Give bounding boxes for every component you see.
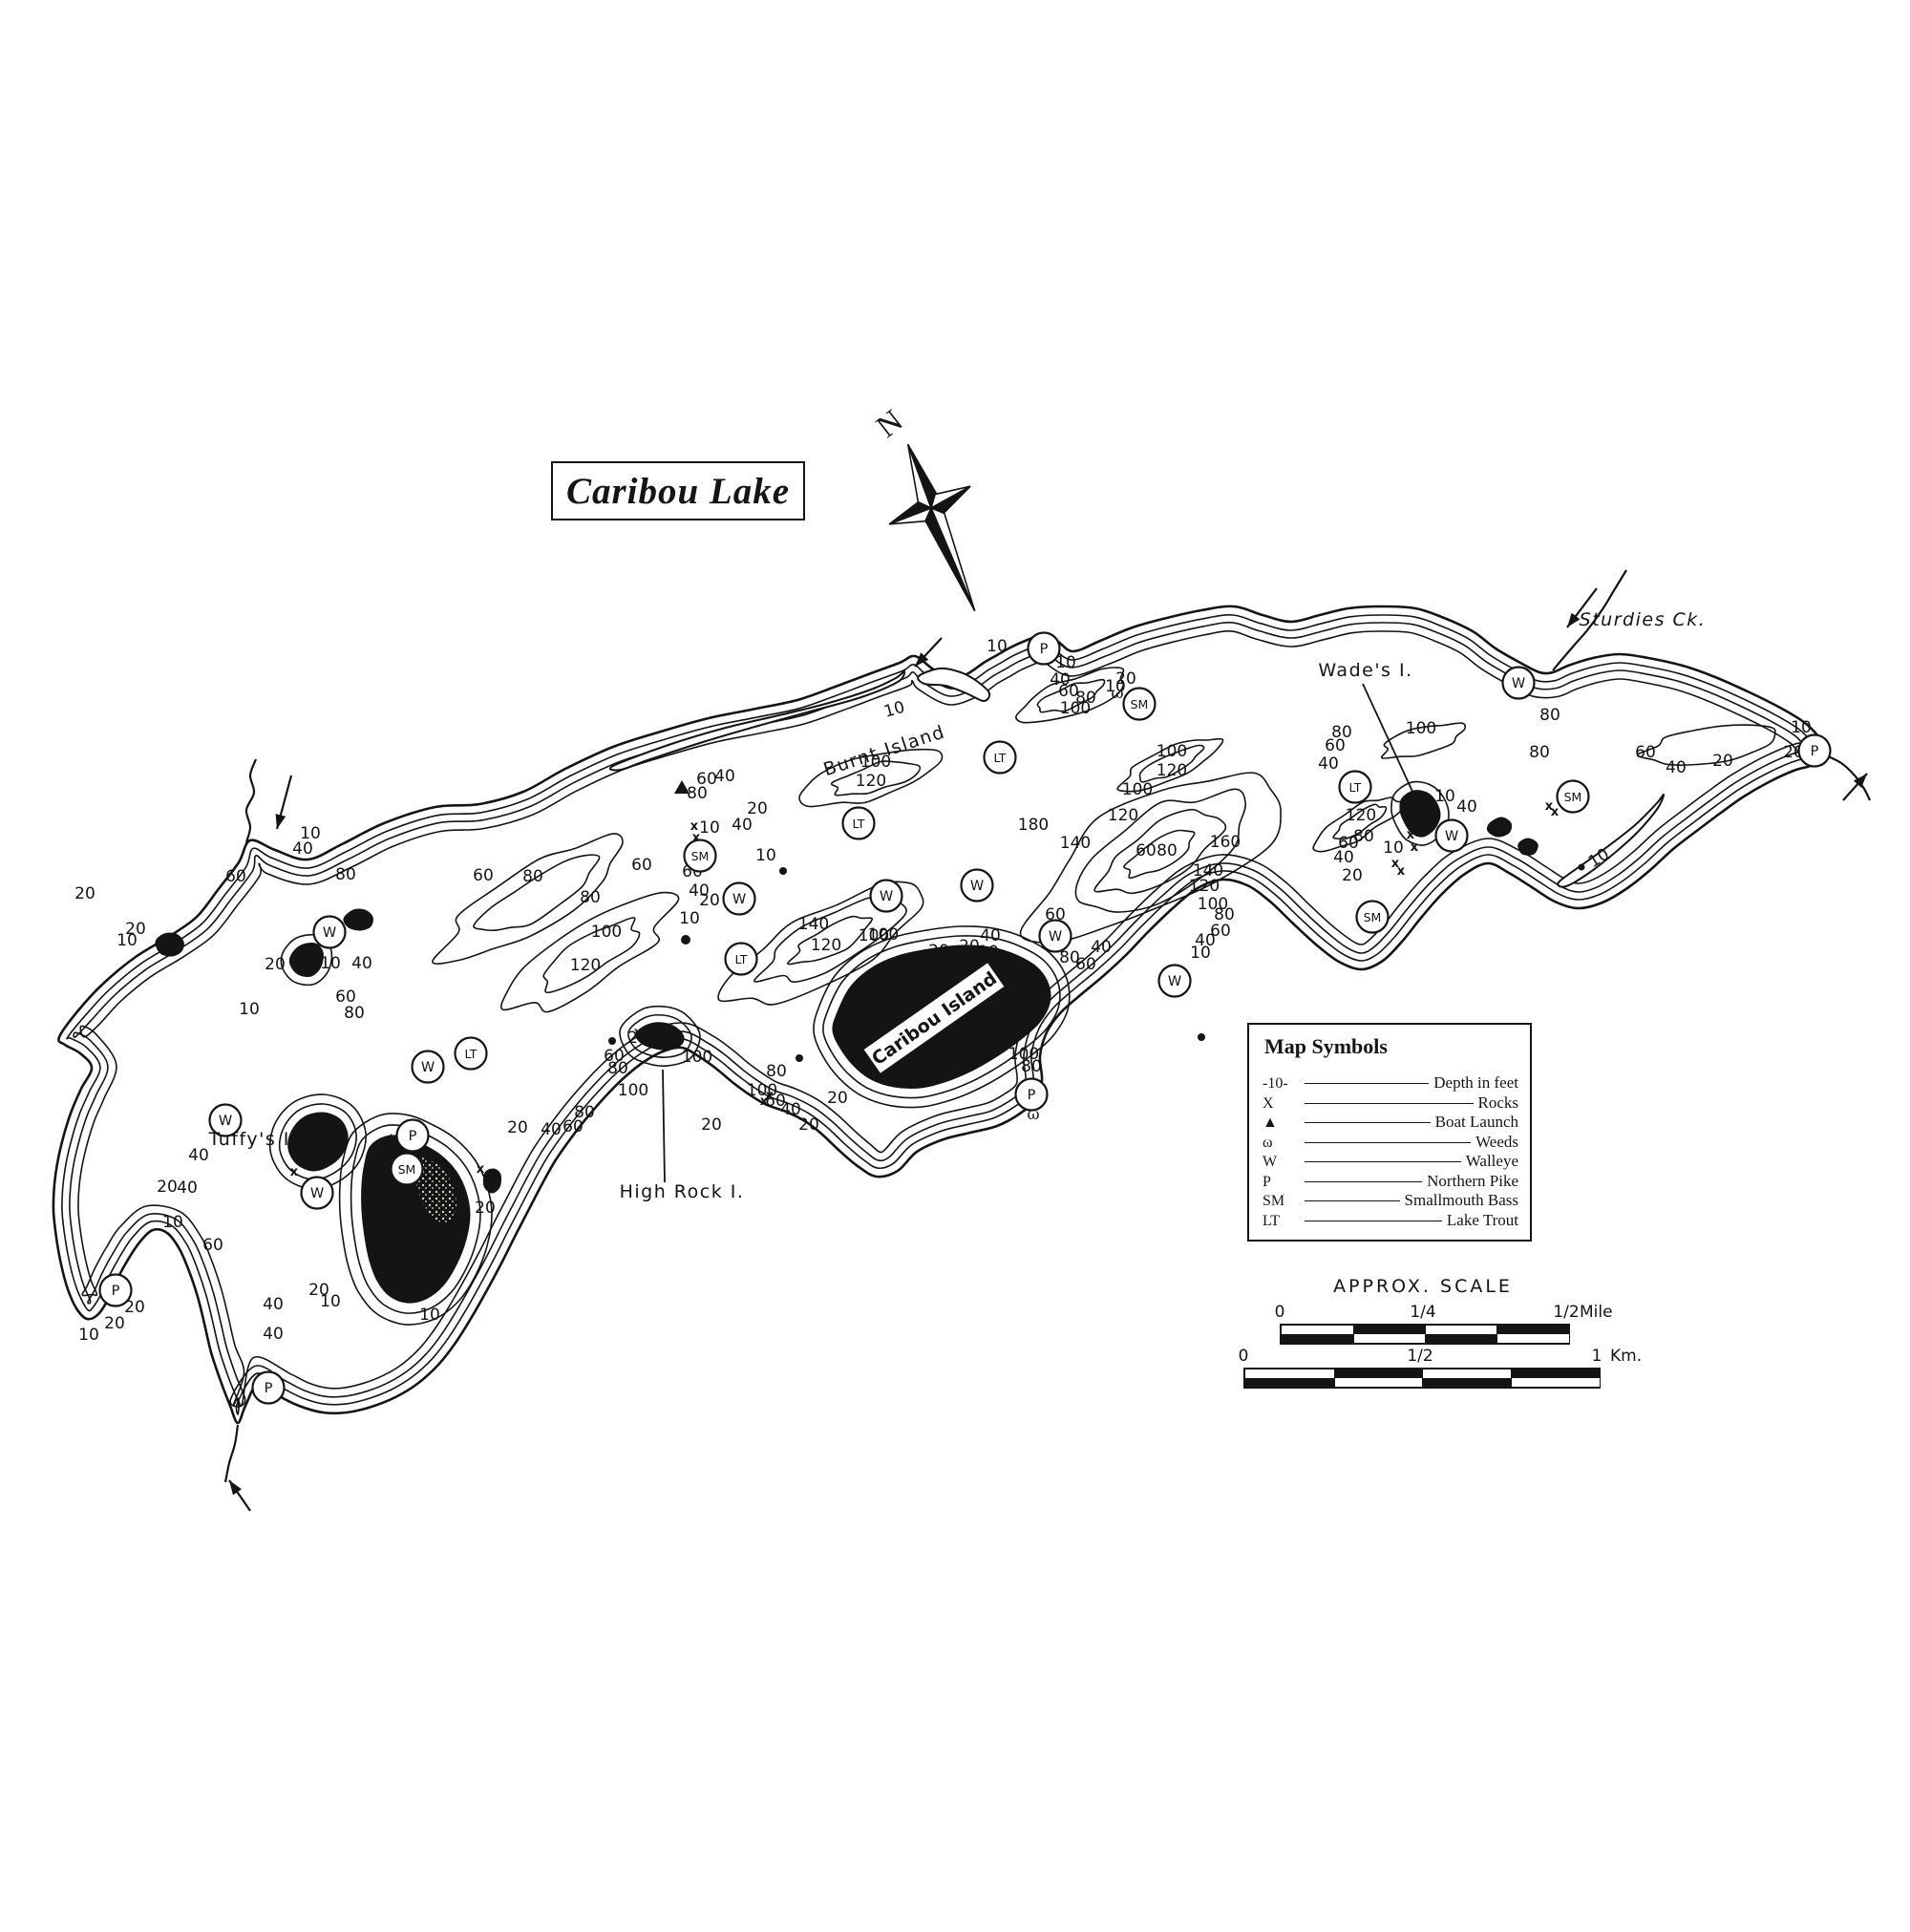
depth-label: 10 [755,846,776,865]
fish-symbol-W: W [302,1178,333,1209]
depth-label: 100 [618,1081,648,1100]
svg-text:LT: LT [465,1047,477,1061]
islet-dot [1198,1033,1205,1041]
scale-tick: 1 [1592,1347,1602,1366]
islet-dot [608,1037,616,1045]
depth-label: 80 [687,784,708,803]
map-title-box: Caribou Lake [551,461,805,520]
svg-text:SM: SM [1364,910,1382,924]
depth-label: 10 [987,637,1008,656]
islet-shape [483,1169,500,1193]
fish-symbol-W: W [314,917,346,948]
depth-label: 40 [1456,797,1477,817]
depth-label: 40 [541,1120,562,1139]
depth-label: 120 [570,956,601,975]
svg-text:W: W [732,892,746,907]
svg-text:W: W [323,925,336,941]
depth-label: 80 [1021,1057,1042,1076]
svg-text:W: W [1168,974,1181,989]
fish-symbol-LT: LT [985,742,1016,774]
depth-label: 140 [1060,834,1091,853]
legend-title: Map Symbols [1264,1034,1518,1059]
legend-label: Weeds [1475,1133,1518,1153]
fish-symbol-SM: SM [1357,902,1389,933]
depth-label: 60 [1075,955,1096,974]
depth-label: 120 [1189,877,1220,896]
depth-label: 10 [320,1292,341,1311]
islet-dot [779,867,787,875]
depth-label: 100 [1122,780,1153,799]
scale-tick: 1/4 [1410,1303,1435,1322]
legend-leader-line [1305,1122,1431,1123]
legend-leader-line [1305,1221,1442,1221]
depth-label: 20 [827,1089,848,1108]
depth-label: 10 [699,818,720,838]
svg-text:W: W [880,889,893,904]
fish-symbol-P: P [397,1120,429,1152]
depth-label: 40 [1666,758,1687,777]
depth-label: 10 [320,954,341,973]
rock-marker: x [766,1089,775,1103]
depth-label: 40 [732,816,753,835]
depth-label: 20 [928,942,949,961]
scale-title: APPROX. SCALE [1333,1276,1513,1297]
scale-bar-group: APPROX. SCALE 01/41/2Mile01/21Km. [1237,1274,1657,1408]
depth-label: 10 [162,1213,183,1232]
legend-symbol: ω [1263,1134,1303,1154]
svg-text:SM: SM [1131,697,1149,711]
svg-text:W: W [219,1114,232,1129]
scale-checker-bar [1280,1324,1570,1345]
depth-label: 20 [699,891,720,910]
depth-label: 60 [1325,736,1346,755]
depth-label: 60 [1635,743,1656,762]
depth-label: 100 [1406,719,1436,738]
fish-symbol-SM: SM [685,840,716,872]
depth-label: 10 [1791,718,1812,737]
map-title: Caribou Lake [566,470,790,513]
depth-label: 20 [798,1115,819,1135]
place-label: High Rock I. [620,1181,745,1202]
depth-label: 20 [104,1314,125,1333]
depth-label: 40 [1333,848,1354,867]
svg-text:LT: LT [735,952,748,966]
depth-label: 10 [419,1306,440,1325]
islet-dot [1579,864,1585,871]
depth-label: 40 [263,1325,284,1344]
fish-symbol-SM: SM [1124,689,1156,720]
legend-symbol: SM [1263,1192,1303,1212]
place-label: Sturdies Ck. [1580,609,1707,630]
fish-symbol-W: W [1159,966,1191,997]
fish-symbol-SM: SM [392,1154,423,1185]
label-leader-line [663,1070,665,1182]
fish-symbol-W: W [962,870,993,902]
svg-text:SM: SM [1564,790,1582,804]
scale-unit: Mile [1580,1303,1613,1322]
legend-label: Walleye [1466,1152,1518,1172]
depth-label: 120 [811,936,841,955]
depth-label: 80 [1529,743,1550,762]
scale-checker-bar [1243,1368,1601,1389]
rock-marker: x [1397,864,1406,879]
legend-symbol: ▲ [1263,1114,1303,1134]
depth-label: 100 [591,923,622,942]
depth-label: 80 [344,1004,365,1023]
depth-label: 80 [574,1103,595,1122]
fish-symbol-LT: LT [843,808,875,839]
islet-shape [1518,839,1538,855]
fish-symbol-P: P [1029,633,1060,665]
svg-text:SM: SM [691,849,710,863]
depth-label: 120 [856,772,886,791]
svg-text:P: P [265,1381,273,1396]
rock-marker: x [1411,840,1419,855]
depth-label: 20 [959,937,980,956]
depth-label: 100 [1060,699,1091,718]
scale-tick: 1/2 [1407,1347,1432,1366]
depth-label: 100 [682,1048,712,1067]
fish-symbol-P: P [1016,1079,1048,1111]
place-label: Wade's I. [1318,660,1412,681]
fish-symbol-LT: LT [726,944,757,975]
fish-symbol-W: W [724,883,755,915]
legend-leader-line [1305,1142,1471,1143]
depth-label: 60 [631,856,652,875]
legend-symbol: X [1263,1094,1303,1115]
depth-label: 10 [978,943,999,962]
depth-label: 120 [1108,806,1138,825]
svg-text:P: P [1811,744,1819,759]
depth-label: 20 [701,1115,722,1135]
legend-symbol: LT [1263,1212,1303,1232]
depth-label: 10 [1190,944,1211,963]
depth-label: 80 [522,867,543,886]
depth-label: 40 [263,1295,284,1314]
legend-symbol: -10- [1263,1074,1303,1094]
legend-row: ▲Boat Launch [1263,1113,1518,1133]
fish-symbol-W: W [413,1051,444,1083]
legend-box: Map Symbols -10-Depth in feetXRocks▲Boat… [1247,1023,1532,1242]
legend-label: Lake Trout [1447,1211,1518,1231]
fish-symbol-LT: LT [1340,772,1371,803]
legend-leader-line [1305,1161,1461,1162]
lake-map: 2020106010408020104060801040204010602020… [0,0,1910,1932]
svg-text:P: P [409,1129,417,1144]
legend-row: -10-Depth in feet [1263,1073,1518,1093]
legend-row: WWalleye [1263,1152,1518,1172]
fish-symbol-W: W [1436,820,1468,852]
depth-label: 120 [1157,761,1187,780]
depth-label: 60 [225,867,246,886]
creek-line [246,759,256,842]
depth-label: 80 [1539,706,1560,725]
depth-label: 100 [1157,742,1187,761]
depth-label: 20 [157,1178,178,1197]
depth-label: 80 [766,1062,787,1081]
legend-leader-line [1305,1083,1429,1084]
compass-point [925,508,974,611]
depth-label: 10 [365,1154,386,1173]
legend-rows: -10-Depth in feetXRocks▲Boat LaunchωWeed… [1263,1073,1518,1230]
depth-label: 180 [1018,816,1049,835]
legend-label: Northern Pike [1427,1172,1518,1192]
legend-row: LTLake Trout [1263,1211,1518,1231]
scale-tick: 0 [1275,1303,1285,1322]
depth-label: 60 [1135,841,1157,860]
fish-symbol-P: P [253,1372,285,1404]
legend-label: Depth in feet [1433,1073,1518,1093]
depth-label: 80 [580,888,601,907]
rock-marker: x [477,1162,485,1177]
depth-label: 80 [335,865,356,884]
fish-symbol-P: P [1799,735,1831,767]
depth-label: 40 [1318,754,1339,774]
svg-text:P: P [112,1284,120,1299]
depth-label: 100 [868,925,899,945]
svg-text:W: W [1512,676,1525,691]
depth-label: 60 [202,1236,223,1255]
legend-label: Rocks [1478,1093,1519,1114]
svg-text:P: P [1028,1088,1036,1103]
depth-label: 40 [1091,938,1112,957]
legend-symbol: W [1263,1153,1303,1173]
depth-label: 20 [507,1118,528,1137]
depth-label: 20 [475,1199,496,1218]
depth-label: 60 [473,866,494,885]
svg-text:W: W [310,1186,324,1201]
north-label: N [870,403,909,444]
islet-shape [156,933,183,956]
legend-row: XRocks [1263,1093,1518,1114]
svg-text:SM: SM [398,1162,416,1177]
fish-symbol-SM: SM [1558,781,1589,813]
svg-text:LT: LT [853,817,865,831]
depth-label: 10 [679,909,700,928]
legend-label: Smallmouth Bass [1405,1191,1518,1211]
fish-symbol-W: W [1503,668,1535,699]
rock-marker: x [1551,805,1560,819]
svg-text:LT: LT [994,751,1007,765]
depth-label: 80 [607,1059,628,1078]
legend-row: PNorthern Pike [1263,1172,1518,1192]
creek-line [225,1425,238,1482]
legend-leader-line [1305,1181,1422,1182]
place-label: Tuffy's I. [208,1129,298,1150]
legend-label: Boat Launch [1435,1113,1518,1133]
fish-symbol-W: W [1040,921,1072,952]
svg-text:W: W [1049,929,1062,945]
depth-label: 10 [117,931,138,950]
legend-symbol: P [1263,1173,1303,1193]
depth-label: 40 [177,1178,198,1198]
legend-leader-line [1305,1103,1474,1104]
svg-text:W: W [421,1060,435,1075]
fish-symbol-P: P [100,1275,132,1306]
depth-label: 100 [1198,895,1228,914]
rock-marker: x [1008,998,1017,1012]
depth-label: 80 [1157,841,1178,860]
depth-label: 120 [1346,806,1376,825]
islet-dot [371,1180,380,1190]
weeds-marker: ω [1111,684,1123,702]
legend-leader-line [1305,1200,1400,1201]
depth-label: 10 [1383,839,1404,858]
map-page: 2020106010408020104060801040204010602020… [0,0,1910,1932]
scale-tick: 0 [1239,1347,1249,1366]
depth-label: 140 [798,915,829,934]
depth-label: 20 [74,884,95,903]
rock-marker: x [634,1026,643,1040]
depth-label: 20 [265,955,286,974]
svg-text:W: W [1445,829,1458,844]
scale-unit: Km. [1610,1347,1642,1366]
scale-tick: 1/2 [1553,1303,1579,1322]
depth-label: 20 [1712,752,1733,771]
depth-label: 40 [292,839,313,859]
svg-text:LT: LT [1349,780,1362,795]
legend-row: ωWeeds [1263,1133,1518,1153]
rock-marker: x [290,1165,299,1179]
depth-label: 40 [351,954,372,973]
svg-text:W: W [970,879,984,894]
depth-label: 10 [78,1326,99,1345]
north-arrow: N [870,403,974,610]
fish-symbol-W: W [871,881,902,912]
depth-label: 10 [239,1000,260,1019]
depth-label: 40 [714,767,735,786]
islet-dot [681,935,690,945]
svg-text:P: P [1040,642,1049,657]
depth-label: 10 [1434,787,1455,806]
depth-label: 20 [1342,866,1363,885]
depth-label: 40 [188,1146,209,1165]
legend-row: SMSmallmouth Bass [1263,1191,1518,1211]
fish-symbol-LT: LT [456,1038,487,1070]
depth-label: 160 [1210,833,1241,852]
islet-dot [796,1054,803,1062]
